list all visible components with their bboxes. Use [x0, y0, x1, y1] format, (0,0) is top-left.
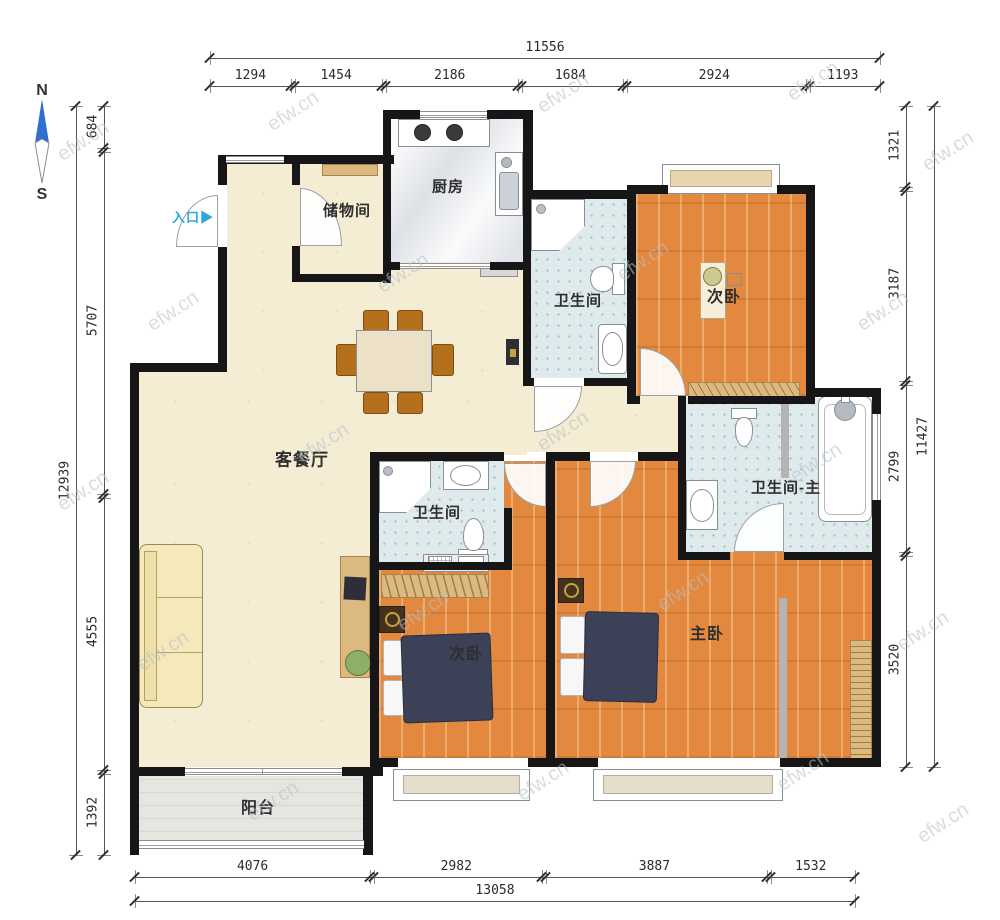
- dimension-label: 4076: [223, 859, 283, 874]
- wall-segment: [383, 164, 391, 283]
- compass-needle-icon: [31, 99, 53, 185]
- floor-plan: 客餐厅 厨房 储物间 卫生间 次卧 卫生间 卫生间-主 次卧 主卧 阳台 入口▶…: [0, 0, 1000, 920]
- room-label-bedroom-top: 次卧: [707, 283, 741, 307]
- room-label-bath-mid: 卫生间: [413, 502, 461, 523]
- bath-sink-oval: [450, 465, 481, 486]
- dimension-label: 1532: [781, 859, 841, 874]
- wall-segment: [379, 562, 512, 570]
- dining-chair: [397, 310, 423, 332]
- room-label-bedroom-master: 主卧: [690, 620, 724, 644]
- kitchen-sink-basin: [499, 172, 519, 210]
- dimension-label: 2924: [684, 68, 744, 83]
- sofa-seam: [157, 652, 202, 653]
- wall-segment: [872, 552, 881, 767]
- wall-segment: [504, 508, 512, 570]
- toilet-bowl: [463, 518, 484, 551]
- window: [420, 111, 487, 118]
- dimension-label: 5707: [86, 290, 101, 350]
- lamp-icon: [564, 583, 579, 598]
- dimension-line: [76, 106, 77, 855]
- wall-segment: [370, 452, 379, 767]
- wall-segment: [872, 500, 881, 552]
- balcony-sliding-door: [185, 768, 342, 775]
- wall-segment: [627, 396, 640, 404]
- wall-segment: [777, 185, 815, 194]
- sofa-back: [144, 551, 157, 701]
- wall-segment: [292, 164, 300, 185]
- room-label-balcony: 阳台: [241, 794, 275, 818]
- dining-chair: [363, 310, 389, 332]
- room-label-bath-master: 卫生间-主: [751, 477, 821, 498]
- wall-segment: [688, 396, 815, 404]
- dimension-line: [906, 106, 907, 767]
- balcony-rail: [139, 840, 364, 849]
- pillow: [560, 616, 585, 654]
- room-label-living: 客餐厅: [275, 446, 329, 471]
- bay-window-sill: [670, 170, 772, 187]
- wall-segment: [130, 767, 185, 776]
- room-label-bedroom-mid: 次卧: [449, 640, 483, 664]
- stove-burner-icon: [446, 124, 463, 141]
- wall-segment: [342, 767, 383, 776]
- wall-segment: [292, 274, 391, 282]
- bath-sink-oval: [690, 489, 714, 522]
- wall-segment: [523, 199, 531, 386]
- compass-north-label: N: [30, 82, 54, 100]
- dimension-line: [135, 877, 855, 878]
- dining-chair: [432, 344, 454, 376]
- dining-table: [356, 330, 432, 392]
- dimension-label: 3887: [624, 859, 684, 874]
- wall-segment: [627, 194, 636, 404]
- shower-partition: [781, 398, 789, 478]
- entrance-label: 入口: [172, 210, 200, 225]
- wall-segment: [490, 262, 523, 270]
- wall-segment: [523, 110, 533, 199]
- floor-living-mid: [139, 372, 527, 455]
- dimension-line: [135, 901, 855, 902]
- wall-segment: [523, 190, 636, 199]
- wall-segment: [487, 110, 533, 119]
- watermark: efw.cn: [913, 798, 973, 848]
- dimension-label: 11556: [515, 40, 575, 55]
- tv: [343, 576, 366, 600]
- stove-burner-icon: [414, 124, 431, 141]
- dimension-label: 1321: [888, 116, 903, 176]
- kitchen-faucet-icon: [501, 157, 512, 168]
- wall-segment: [363, 767, 373, 855]
- lamp-icon: [385, 612, 400, 627]
- plant-icon: [345, 650, 371, 676]
- dimension-line: [104, 106, 105, 855]
- wall-segment: [218, 247, 227, 372]
- shower-head-icon: [536, 204, 546, 214]
- dimension-label: 13058: [465, 883, 525, 898]
- watermark: efw.cn: [853, 286, 913, 336]
- wall-segment: [678, 552, 730, 560]
- storage-cabinet: [322, 164, 378, 176]
- dimension-label: 1392: [86, 782, 101, 842]
- sliding-track: [779, 598, 787, 758]
- wall-segment: [391, 262, 400, 270]
- watermark: efw.cn: [918, 126, 978, 176]
- wall-segment: [546, 452, 555, 767]
- wall-segment: [523, 378, 534, 386]
- dimension-label: 2799: [888, 436, 903, 496]
- dimension-label: 1193: [813, 68, 873, 83]
- dimension-label: 4555: [86, 602, 101, 662]
- shower-head-icon: [383, 466, 393, 476]
- dimension-label: 684: [86, 96, 101, 156]
- compass-south-label: S: [30, 186, 54, 204]
- dimension-label: 1454: [306, 68, 366, 83]
- pillow: [560, 658, 585, 696]
- wall-art-center: [510, 349, 516, 357]
- dimension-line: [934, 106, 935, 767]
- wall-segment: [558, 758, 598, 767]
- dimension-label: 3520: [888, 629, 903, 689]
- wall-segment: [784, 552, 881, 560]
- dining-chair: [336, 344, 358, 376]
- slider-seam: [262, 768, 263, 775]
- bookshelf: [381, 574, 489, 598]
- dimension-label: 12939: [58, 450, 73, 510]
- sofa-seam: [157, 597, 202, 598]
- wall-segment: [780, 758, 881, 767]
- wall-segment: [806, 388, 881, 397]
- room-label-bath-top: 卫生间: [554, 290, 602, 311]
- wall-segment: [678, 396, 686, 560]
- wall-segment: [370, 452, 504, 461]
- dimension-line: [210, 58, 880, 59]
- dimension-label: 1294: [220, 68, 280, 83]
- wall-segment: [638, 452, 686, 461]
- watermark: efw.cn: [263, 86, 323, 136]
- bed: [583, 611, 659, 703]
- wardrobe: [850, 640, 872, 762]
- toilet-bowl: [590, 266, 614, 292]
- dimension-label: 2186: [420, 68, 480, 83]
- dining-chair: [363, 392, 389, 414]
- dimension-line: [210, 86, 880, 87]
- wall-segment: [130, 363, 227, 372]
- wall-segment: [806, 185, 815, 397]
- bay-window-sill: [403, 775, 520, 794]
- stove-counter: [398, 119, 490, 147]
- room-label-kitchen: 厨房: [432, 176, 464, 197]
- dining-chair: [397, 392, 423, 414]
- bay-window-sill: [603, 775, 773, 794]
- dimension-label: 3187: [888, 253, 903, 313]
- wall-segment: [130, 363, 139, 855]
- kitchen-sliding-door: [400, 263, 490, 269]
- dimension-label: 1684: [540, 68, 600, 83]
- dimension-label: 11427: [916, 406, 931, 466]
- watermark: efw.cn: [143, 286, 203, 336]
- entrance-marker: 入口▶: [172, 207, 214, 226]
- window: [872, 414, 881, 500]
- window: [226, 156, 284, 163]
- bath-sink-oval: [602, 332, 623, 366]
- room-label-storage: 储物间: [323, 200, 371, 221]
- dimension-label: 2982: [426, 859, 486, 874]
- entrance-arrow-icon: ▶: [200, 210, 214, 225]
